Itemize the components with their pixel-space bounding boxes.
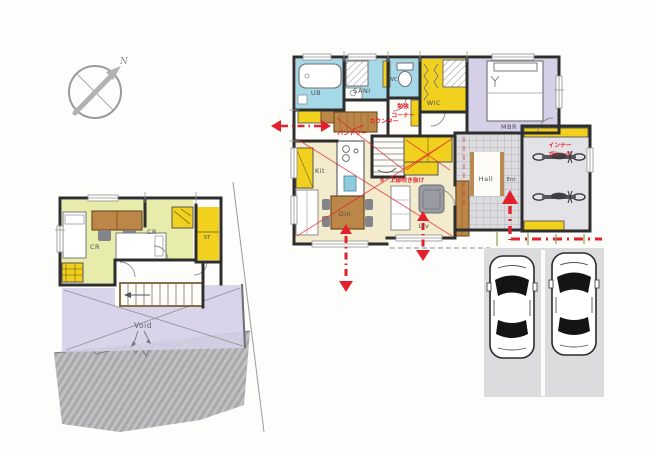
car-icon (549, 253, 599, 355)
car-icon (487, 256, 537, 358)
annotation-study-corner: 勉強 (396, 102, 409, 110)
label-st: ST (204, 235, 211, 241)
label-cr1: CR (90, 243, 100, 251)
floor-plan-canvas: N (0, 0, 650, 450)
label-cr2: CR (147, 228, 157, 236)
label-ub: UB (311, 89, 321, 97)
bed (63, 212, 86, 258)
label-wc: WC (388, 77, 397, 83)
annotation-inner-garage: ガレージ (548, 150, 571, 158)
annotation-void-above: 上部吹き抜け (390, 176, 425, 184)
annotation-inner-garage: インナー (548, 142, 571, 149)
second-floor-plan: CR CR ST Void (57, 195, 246, 352)
room-storage (196, 207, 219, 260)
label-hall: Hall (479, 175, 493, 183)
shelf-cabinet (62, 263, 83, 282)
label-kit: Kit (315, 167, 325, 175)
label-mbr: MBR (501, 123, 517, 131)
label-wic: WIC (427, 99, 441, 107)
stairs-1f (372, 136, 404, 177)
parking-area (484, 248, 604, 397)
stairs-2f (120, 283, 203, 306)
label-din: Din (339, 210, 351, 218)
label-liv: Liv (419, 222, 430, 230)
label-sani: SANI (353, 87, 370, 95)
north-label: N (119, 57, 129, 67)
compass-icon: N (69, 57, 129, 118)
annotation-counter: カウンター (370, 117, 399, 125)
bed (487, 61, 543, 121)
annotation-pantry: パントリー (337, 129, 366, 137)
sideboard (456, 181, 469, 236)
floor-plan-sketch: N (0, 0, 650, 450)
label-void: Void (134, 321, 152, 330)
annotation-study-corner: コーナー (391, 112, 414, 119)
label-ent: Ent (506, 177, 516, 183)
bed (116, 233, 166, 259)
